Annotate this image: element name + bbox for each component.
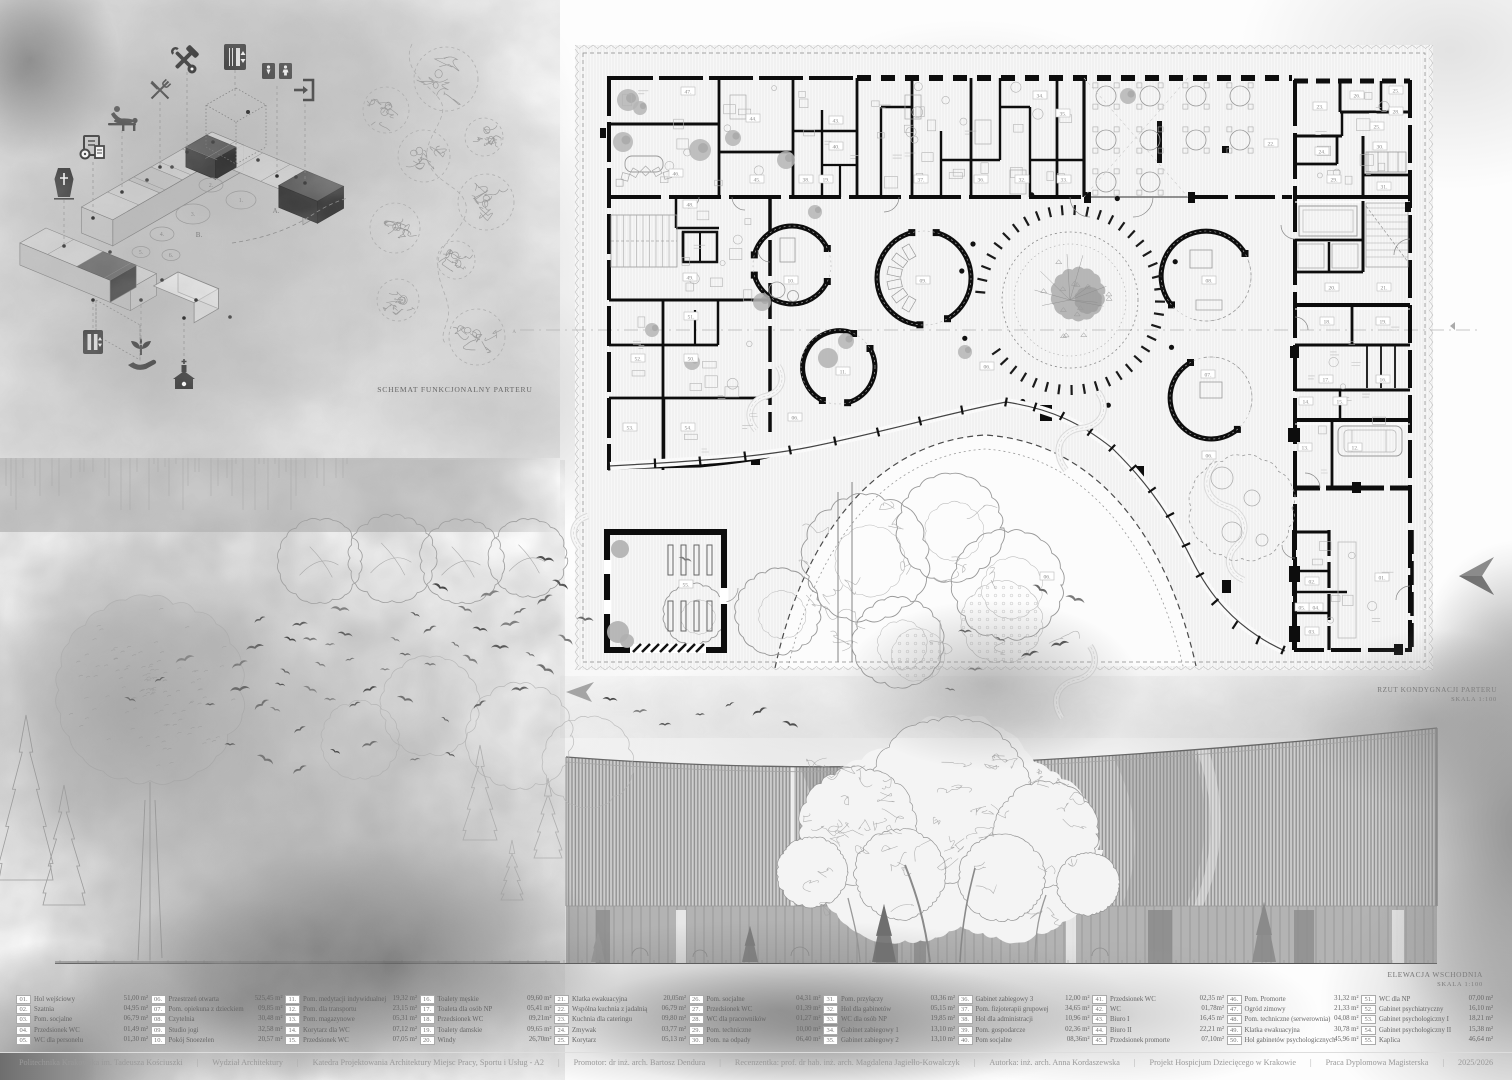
svg-text:14.: 14. [1303,400,1311,406]
svg-text:03.: 03. [1309,630,1317,636]
svg-text:35.: 35. [1060,112,1068,118]
svg-text:A: A [512,330,516,335]
svg-text:19.: 19. [1380,320,1388,326]
svg-text:06.: 06. [1206,454,1214,460]
svg-text:26.: 26. [1354,94,1362,100]
svg-text:46.: 46. [673,172,681,178]
svg-text:17.: 17. [1323,378,1331,384]
svg-text:16.: 16. [1380,378,1388,384]
svg-text:34.: 34. [1037,94,1045,100]
svg-text:A.: A. [273,207,280,215]
svg-text:23.: 23. [1317,105,1325,111]
svg-text:45.: 45. [754,178,762,184]
svg-text:25.: 25. [1393,89,1401,95]
svg-text:B.: B. [196,231,203,239]
svg-text:25.: 25. [1374,125,1382,131]
svg-text:15.: 15. [1337,400,1345,406]
svg-text:32.: 32. [1019,178,1027,184]
svg-text:08.: 08. [1206,279,1214,285]
svg-text:24.: 24. [1319,150,1327,156]
svg-text:11.: 11. [840,370,847,376]
svg-text:20.: 20. [1329,286,1337,292]
svg-text:10.: 10. [788,279,796,285]
svg-text:53.: 53. [627,426,635,432]
svg-text:44.: 44. [750,117,758,123]
svg-text:05.: 05. [1299,606,1307,612]
svg-text:19.: 19. [823,178,831,184]
svg-text:55.: 55. [683,583,691,589]
svg-text:37.: 37. [918,178,926,184]
svg-text:22.: 22. [1268,142,1276,148]
svg-text:18.: 18. [1324,320,1332,326]
svg-text:28.: 28. [1393,110,1401,116]
svg-text:48.: 48. [687,203,695,209]
svg-text:33.: 33. [1061,178,1069,184]
svg-text:07.: 07. [1205,373,1213,379]
svg-text:12.: 12. [1352,446,1360,452]
svg-text:02.: 02. [1309,580,1317,586]
svg-text:43.: 43. [833,119,841,125]
svg-text:29.: 29. [1331,178,1339,184]
svg-text:06.: 06. [984,365,992,371]
svg-text:49.: 49. [687,276,695,282]
svg-text:54.: 54. [685,426,693,432]
svg-text:09.: 09. [920,279,928,285]
svg-text:SCHEMAT FUNKCJONALNY PARTERU: SCHEMAT FUNKCJONALNY PARTERU [377,385,532,394]
svg-text:3.: 3. [191,212,196,218]
svg-text:2.: 2. [209,183,214,189]
svg-text:04.: 04. [1313,606,1321,612]
svg-text:50.: 50. [688,357,696,363]
svg-text:30.: 30. [1377,145,1385,151]
svg-text:47.: 47. [685,90,693,96]
svg-text:52.: 52. [635,357,643,363]
svg-text:13.: 13. [1302,446,1310,452]
svg-text:6.: 6. [169,253,174,259]
svg-text:06.: 06. [792,416,800,422]
svg-text:21.: 21. [1381,286,1389,292]
svg-text:06.: 06. [1044,575,1052,581]
svg-text:51.: 51. [688,315,696,321]
svg-text:31.: 31. [1381,185,1389,191]
svg-text:5.: 5. [139,250,144,256]
svg-text:01.: 01. [1379,576,1387,582]
svg-text:36.: 36. [978,178,986,184]
svg-text:4.: 4. [160,232,165,238]
svg-text:1.: 1. [239,198,244,204]
svg-text:38.: 38. [803,178,811,184]
svg-text:40.: 40. [833,145,841,151]
